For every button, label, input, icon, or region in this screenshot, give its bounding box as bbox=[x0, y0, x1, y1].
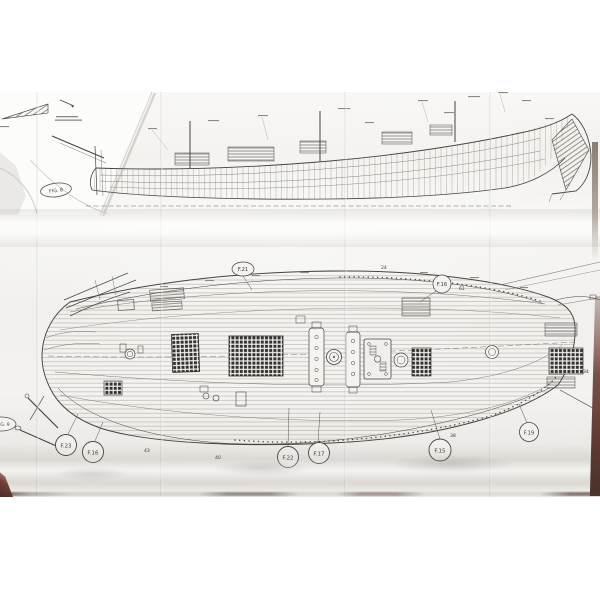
paper-bottom-edge-shadow bbox=[0, 492, 600, 496]
bitts-rail bbox=[309, 322, 324, 392]
number-61: 61 bbox=[459, 286, 465, 292]
bitts-rail bbox=[346, 326, 360, 393]
horizontal-fold-band bbox=[0, 209, 600, 247]
svg-text:F.19: F.19 bbox=[524, 430, 534, 436]
grating bbox=[412, 348, 431, 376]
pump-hole bbox=[394, 353, 408, 367]
grating bbox=[171, 334, 199, 373]
vertical-fold-crease bbox=[489, 92, 492, 497]
windlass bbox=[150, 288, 185, 301]
tiny-text-line bbox=[56, 116, 78, 117]
number-24: 24 bbox=[381, 265, 387, 271]
anchor bbox=[28, 398, 58, 428]
mizzenmast-hole bbox=[486, 346, 499, 359]
tiny-text-line bbox=[55, 120, 82, 121]
number-34: 34 bbox=[583, 369, 589, 375]
mainmast-hole bbox=[327, 350, 342, 365]
svg-text:F.21: F.21 bbox=[238, 267, 248, 273]
label-fig9: FIG. 9 bbox=[0, 417, 16, 431]
stern-skylight bbox=[545, 323, 577, 336]
label-f21: F.21 bbox=[232, 262, 254, 276]
label-f19: F.19 bbox=[520, 423, 539, 442]
label-f16-top: F.16 bbox=[433, 275, 451, 293]
vertical-fold-crease bbox=[160, 92, 163, 497]
number-38: 38 bbox=[450, 433, 456, 439]
bottom-fold-shadows bbox=[0, 444, 600, 492]
grating-stern bbox=[549, 348, 583, 374]
grating-main bbox=[229, 336, 283, 376]
background-edge-right bbox=[592, 142, 598, 260]
svg-text:F.16: F.16 bbox=[437, 282, 447, 288]
boom-spar bbox=[500, 262, 600, 285]
svg-text:FIG. 9: FIG. 9 bbox=[0, 422, 10, 428]
deck-plan-drawing: F.21 F.16 FIG. 9 F.23 F.16 bbox=[0, 262, 600, 468]
underlying-sheet-corner bbox=[0, 92, 155, 216]
photo-of-ship-plan: FIG. 8 bbox=[0, 0, 600, 600]
plan-drawing: FIG. 8 bbox=[0, 85, 600, 497]
mast-partners bbox=[364, 339, 391, 379]
grating-small bbox=[104, 381, 122, 395]
vertical-fold-crease bbox=[36, 92, 39, 497]
companionway bbox=[402, 298, 430, 316]
vertical-fold-crease bbox=[344, 92, 347, 497]
